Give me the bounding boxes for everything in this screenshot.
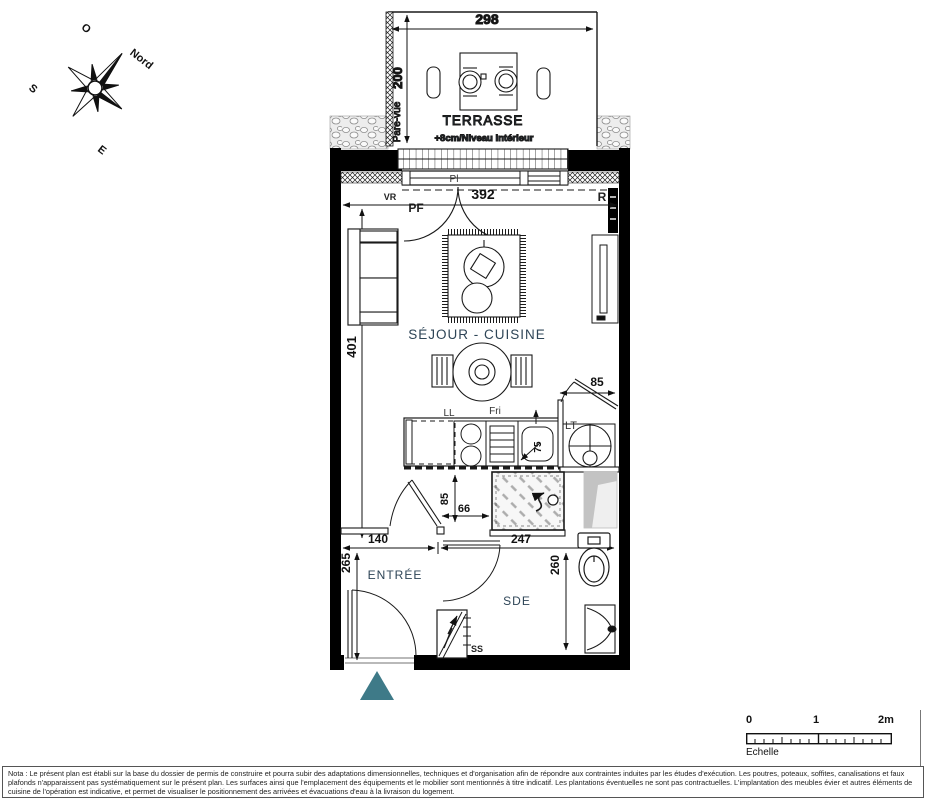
electrical-closet xyxy=(437,610,471,658)
exterior-walls xyxy=(330,148,630,670)
sheet-right-border xyxy=(920,710,921,766)
scale-one: 1 xyxy=(813,714,819,726)
terrace-label: TERRASSE xyxy=(443,113,524,128)
dim-entry-depth: 265 xyxy=(339,553,353,573)
terrace-level-note: +8cm/Niveau intérieur xyxy=(434,133,533,144)
console-unit xyxy=(592,235,618,323)
sde-door xyxy=(443,541,500,601)
tag-r: R xyxy=(598,190,607,204)
pare-vue-label: Pare-vue xyxy=(392,101,403,142)
compass-rose: Nord O S E xyxy=(23,11,168,157)
terrace-table xyxy=(427,53,550,110)
floor-plan-sheet: Nord O S E 298 200 Pare-vue TERRASSE xyxy=(0,0,926,800)
compass-west-label: O xyxy=(79,21,93,36)
rug xyxy=(445,232,523,320)
dim-sde-depth: 260 xyxy=(548,555,562,575)
compass-north-label: Nord xyxy=(127,47,155,72)
floor-plan-svg: Nord O S E 298 200 Pare-vue TERRASSE xyxy=(0,0,926,712)
terrace-depth-dim: 200 xyxy=(390,67,405,89)
tag-fri: Fri xyxy=(489,406,501,417)
entry-label: ENTRÉE xyxy=(368,567,423,582)
dim-sink-clear: 75 xyxy=(533,441,544,453)
living-room-label: SÉJOUR - CUISINE xyxy=(408,327,546,342)
tag-pl: Pl xyxy=(450,174,459,185)
compass-south-label: S xyxy=(26,82,39,96)
tag-ll: LL xyxy=(443,408,455,419)
sofa xyxy=(348,229,398,325)
dim-shower-w: 66 xyxy=(458,503,470,515)
pouf xyxy=(462,283,492,313)
toilet xyxy=(578,533,610,586)
radiator xyxy=(608,188,618,233)
tag-ss: SS xyxy=(471,644,483,654)
tag-vr: VR xyxy=(384,192,397,202)
vanity-unit xyxy=(585,605,616,653)
kitchen xyxy=(404,410,578,468)
tag-lt: LT xyxy=(565,420,577,432)
dining-table xyxy=(432,343,532,401)
nota-text: Nota : Le présent plan est établi sur la… xyxy=(2,766,924,798)
dim-shower-d: 85 xyxy=(439,493,451,505)
soffite-band-right xyxy=(568,172,619,183)
scale-ruler xyxy=(746,733,892,745)
terrace-width-dim: 298 xyxy=(475,11,499,27)
pebble-band-left xyxy=(330,116,388,149)
entrance-marker xyxy=(360,671,394,700)
terrace-area: 298 200 Pare-vue TERRASSE +8cm/Niveau in… xyxy=(330,11,630,149)
dim-entry-width: 140 xyxy=(368,532,388,546)
pebble-band-right xyxy=(597,116,630,149)
dim-sde-door: 85 xyxy=(590,375,604,389)
compass-east-label: E xyxy=(95,143,108,157)
sde-label: SDE xyxy=(503,594,531,608)
soffite-band-left xyxy=(341,172,402,183)
dim-living-width: 392 xyxy=(471,186,495,202)
entry-door xyxy=(348,590,416,658)
sde-upper-door xyxy=(560,379,618,409)
gaine-technique xyxy=(584,472,617,528)
scale-two: 2m xyxy=(878,714,894,726)
living-entry-door xyxy=(390,480,441,526)
shower xyxy=(492,472,564,530)
scale-zero: 0 xyxy=(746,714,752,726)
dim-living-depth: 401 xyxy=(344,336,359,358)
tag-pf: PF xyxy=(408,201,423,215)
dim-sde-width: 247 xyxy=(511,532,531,546)
scale-caption: Echelle xyxy=(746,747,779,758)
